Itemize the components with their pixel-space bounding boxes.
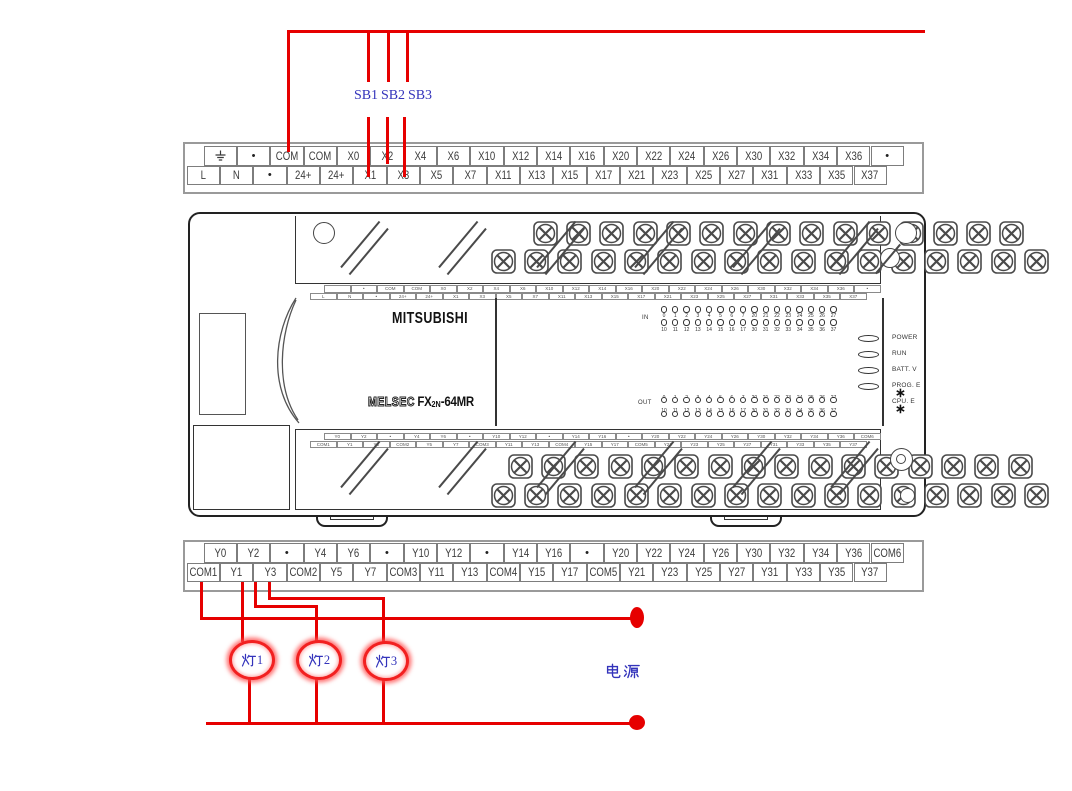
left-slot xyxy=(199,313,247,415)
screw-terminal xyxy=(491,483,516,508)
io-led xyxy=(751,397,757,403)
io-led xyxy=(763,306,769,312)
plc-terminal-label: • xyxy=(854,285,881,293)
plc-terminal-label: Y30 xyxy=(748,433,775,441)
plc-unit: •COMCOMX0X2X4X6X10X12X14X16X20X22X24X26X… xyxy=(188,212,926,517)
screw-terminal xyxy=(799,221,824,246)
terminal-Y14: Y14 xyxy=(504,543,537,563)
io-led xyxy=(706,306,712,312)
wire-segment xyxy=(254,605,318,608)
plc-terminal-label: • xyxy=(351,285,378,293)
wire-segment xyxy=(248,673,251,725)
status-led xyxy=(858,383,879,390)
io-led xyxy=(661,306,667,312)
plc-terminal-label: X31 xyxy=(761,293,788,301)
status-led xyxy=(858,367,879,374)
plc-terminal-label: 24+ xyxy=(416,293,443,301)
out-led-group-label: OUT xyxy=(638,400,652,406)
terminal-X5: X5 xyxy=(420,166,453,186)
wire-segment xyxy=(268,597,384,600)
plc-terminal-label: Y13 xyxy=(522,441,549,449)
terminal-Y27: Y27 xyxy=(720,563,753,583)
io-led xyxy=(695,397,701,403)
plc-terminal-label: COM xyxy=(404,285,431,293)
io-led xyxy=(830,306,836,312)
io-led xyxy=(695,411,701,417)
io-led-number: 26 xyxy=(817,313,828,319)
screw-terminal xyxy=(533,221,558,246)
io-led xyxy=(672,411,678,417)
plc-terminal-label: X7 xyxy=(522,293,549,301)
lamp-symbol: 3 xyxy=(363,641,409,681)
terminal-Y4: Y4 xyxy=(304,543,337,563)
cjk-glyph xyxy=(308,653,323,668)
io-led xyxy=(717,319,723,325)
io-led xyxy=(796,306,802,312)
io-led xyxy=(729,397,735,403)
terminal-X34: X34 xyxy=(804,146,837,166)
io-led xyxy=(830,411,836,417)
io-led xyxy=(661,411,667,417)
io-led xyxy=(717,306,723,312)
melsec-logo: MELSEC xyxy=(368,395,415,409)
plc-terminal-label xyxy=(324,285,351,293)
terminal-COM6: COM6 xyxy=(871,543,904,563)
terminal-Y0: Y0 xyxy=(204,543,237,563)
io-led-number: 23 xyxy=(783,313,794,319)
star-icon: ∗ xyxy=(895,389,906,397)
io-led-number: 1 xyxy=(670,313,681,319)
io-led xyxy=(706,319,712,325)
plc-terminal-label: COM5 xyxy=(628,441,655,449)
wire-segment xyxy=(287,30,290,152)
screw-terminal xyxy=(1024,483,1049,508)
wire-segment xyxy=(206,722,636,726)
screw-terminal xyxy=(674,454,699,479)
screw-terminal xyxy=(791,483,816,508)
screw-terminal xyxy=(774,454,799,479)
io-led-number: 0 xyxy=(659,313,670,319)
terminal-Y1: Y1 xyxy=(220,563,253,583)
io-led xyxy=(785,411,791,417)
faceplate-divider-left xyxy=(495,298,497,426)
screw-terminal xyxy=(508,454,533,479)
io-led-number: 27 xyxy=(828,313,839,319)
terminal-X25: X25 xyxy=(687,166,720,186)
io-led-number: 15 xyxy=(715,327,726,333)
spare-terminal: • xyxy=(470,543,503,563)
plc-terminal-label: X23 xyxy=(681,293,708,301)
terminal-Y26: Y26 xyxy=(704,543,737,563)
plc-terminal-label: X10 xyxy=(536,285,563,293)
io-led xyxy=(785,306,791,312)
terminal-Y23: Y23 xyxy=(653,563,686,583)
plc-terminal-label: X37 xyxy=(840,293,867,301)
plc-terminal-label: Y5 xyxy=(416,441,443,449)
io-led-number: 11 xyxy=(670,327,681,333)
plc-terminal-label: Y22 xyxy=(669,433,696,441)
cjk-digit: 2 xyxy=(324,653,330,668)
io-led-number: 4 xyxy=(704,313,715,319)
screw-terminal xyxy=(491,249,516,274)
io-led xyxy=(706,397,712,403)
terminal-N: N xyxy=(220,166,253,186)
io-led xyxy=(763,319,769,325)
power-terminal-dot xyxy=(629,715,645,730)
plc-terminal-label: Y32 xyxy=(775,433,802,441)
face-curve xyxy=(262,292,304,428)
io-led xyxy=(683,306,689,312)
wire-segment xyxy=(367,117,370,177)
plc-terminal-label: X24 xyxy=(695,285,722,293)
terminal-X4: X4 xyxy=(404,146,437,166)
plc-terminal-label: X34 xyxy=(801,285,828,293)
terminal-X24: X24 xyxy=(670,146,703,166)
screw-terminal xyxy=(608,454,633,479)
in-led-group-label: IN xyxy=(642,315,649,321)
io-led xyxy=(763,397,769,403)
plc-terminal-label: X17 xyxy=(628,293,655,301)
model-subscript: 2N xyxy=(432,399,441,409)
screw-terminal xyxy=(924,249,949,274)
io-led-number: 7 xyxy=(738,313,749,319)
plc-terminal-label: X35 xyxy=(814,293,841,301)
io-led xyxy=(796,319,802,325)
plc-terminal-label: X22 xyxy=(669,285,696,293)
screw-terminal xyxy=(808,454,833,479)
screw-terminal xyxy=(933,221,958,246)
io-led-number: 22 xyxy=(772,313,783,319)
power-terminal-dot xyxy=(630,607,644,628)
io-led-number: 24 xyxy=(794,313,805,319)
terminal-Y33: Y33 xyxy=(787,563,820,583)
io-led xyxy=(661,397,667,403)
wire-segment xyxy=(315,673,318,725)
plc-terminal-label: Y36 xyxy=(828,433,855,441)
io-led xyxy=(751,319,757,325)
io-led xyxy=(729,319,735,325)
cjk-glyph xyxy=(375,654,390,669)
terminal-X23: X23 xyxy=(653,166,686,186)
io-led xyxy=(672,397,678,403)
terminal-Y15: Y15 xyxy=(520,563,553,583)
io-led xyxy=(830,397,836,403)
screw-terminal xyxy=(757,483,782,508)
io-led-number: 35 xyxy=(805,327,816,333)
screw-terminal xyxy=(591,249,616,274)
plc-terminal-label: 24+ xyxy=(390,293,417,301)
bottom-left-panel xyxy=(193,425,290,510)
wire-segment xyxy=(315,605,318,643)
status-led-label: RUN xyxy=(892,350,907,357)
wire-segment xyxy=(254,582,257,607)
model-suffix: -64MR xyxy=(441,394,474,409)
plc-terminal-label: X4 xyxy=(483,285,510,293)
status-led xyxy=(858,351,879,358)
terminal-24: 24+ xyxy=(287,166,320,186)
terminal-X12: X12 xyxy=(504,146,537,166)
plc-terminal-label: Y1 xyxy=(337,441,364,449)
plc-wiring-diagram: •COMCOMX0X2X4X6X10X12X14X16X20X22X24X26X… xyxy=(0,0,1072,791)
io-led-number: 25 xyxy=(805,313,816,319)
terminal-COM2: COM2 xyxy=(287,563,320,583)
plc-terminal-label: • xyxy=(536,433,563,441)
io-led xyxy=(785,397,791,403)
terminal-X14: X14 xyxy=(537,146,570,166)
terminal-Y31: Y31 xyxy=(753,563,786,583)
plc-terminal-label: X21 xyxy=(655,293,682,301)
plc-terminal-label: Y0 xyxy=(324,433,351,441)
screw-terminal xyxy=(691,483,716,508)
terminal-COM4: COM4 xyxy=(487,563,520,583)
terminal-X13: X13 xyxy=(520,166,553,186)
screw-terminal xyxy=(924,483,949,508)
terminal-Y11: Y11 xyxy=(420,563,453,583)
terminal-Y35: Y35 xyxy=(820,563,853,583)
terminal-Y22: Y22 xyxy=(637,543,670,563)
terminal-X16: X16 xyxy=(570,146,603,166)
terminal-X31: X31 xyxy=(753,166,786,186)
io-led-number: 2 xyxy=(681,313,692,319)
io-led-number: 34 xyxy=(794,327,805,333)
plc-terminal-label: COM1 xyxy=(310,441,337,449)
io-led xyxy=(740,397,746,403)
terminal-COM1: COM1 xyxy=(187,563,220,583)
screw-terminal xyxy=(708,454,733,479)
terminal-X6: X6 xyxy=(437,146,470,166)
screw-terminal xyxy=(966,221,991,246)
io-led xyxy=(819,397,825,403)
push-button-label: SB3 xyxy=(406,88,434,104)
io-led xyxy=(774,306,780,312)
terminal-X21: X21 xyxy=(620,166,653,186)
io-led-number: 17 xyxy=(738,327,749,333)
screw-terminal xyxy=(974,454,999,479)
screw-terminal xyxy=(957,249,982,274)
terminal-Y37: Y37 xyxy=(854,563,887,583)
io-led xyxy=(830,319,836,325)
terminal-X36: X36 xyxy=(837,146,870,166)
plc-terminal-label: Y2 xyxy=(351,433,378,441)
screw-terminal xyxy=(991,483,1016,508)
cjk-glyph xyxy=(604,663,621,680)
terminal-X27: X27 xyxy=(720,166,753,186)
plc-terminal-label: X32 xyxy=(775,285,802,293)
plc-terminal-label: X26 xyxy=(722,285,749,293)
plc-terminal-label: X30 xyxy=(748,285,775,293)
cjk-digit: 1 xyxy=(257,653,263,668)
io-led xyxy=(774,319,780,325)
io-led xyxy=(774,411,780,417)
plc-terminal-label: Y4 xyxy=(404,433,431,441)
screw-terminal xyxy=(599,221,624,246)
io-led xyxy=(740,306,746,312)
plc-terminal-label: Y25 xyxy=(708,441,735,449)
plc-terminal-label: • xyxy=(363,293,390,301)
wire-segment xyxy=(367,30,370,82)
plc-terminal-label: X25 xyxy=(708,293,735,301)
terminal-Y25: Y25 xyxy=(687,563,720,583)
terminal-Y12: Y12 xyxy=(437,543,470,563)
plc-terminal-label: Y27 xyxy=(734,441,761,449)
plc-terminal-label: Y23 xyxy=(681,441,708,449)
terminal-Y21: Y21 xyxy=(620,563,653,583)
plc-terminal-label: L xyxy=(310,293,337,301)
plc-terminal-label: X1 xyxy=(443,293,470,301)
push-button-label: SB2 xyxy=(379,88,407,104)
screw-terminal xyxy=(957,483,982,508)
screw-terminal xyxy=(557,483,582,508)
spare-terminal: • xyxy=(871,146,904,166)
io-led xyxy=(717,411,723,417)
terminal-COM: COM xyxy=(304,146,337,166)
spare-terminal: • xyxy=(370,543,403,563)
lamp-symbol: 1 xyxy=(229,640,275,680)
io-led xyxy=(819,411,825,417)
terminal-Y34: Y34 xyxy=(804,543,837,563)
wire-segment xyxy=(241,582,244,642)
screw-terminal xyxy=(591,483,616,508)
io-led xyxy=(683,411,689,417)
spare-terminal: • xyxy=(270,543,303,563)
plc-terminal-label: • xyxy=(377,433,404,441)
screw-terminal xyxy=(791,249,816,274)
io-led xyxy=(695,306,701,312)
io-led xyxy=(808,306,814,312)
faceplate-divider-right xyxy=(882,298,884,426)
io-led xyxy=(740,411,746,417)
terminal-Y20: Y20 xyxy=(604,543,637,563)
star-icon: ∗ xyxy=(895,405,906,413)
screw-terminal xyxy=(657,483,682,508)
io-led-number: 3 xyxy=(692,313,703,319)
io-led xyxy=(740,319,746,325)
spare-terminal: • xyxy=(253,166,286,186)
terminal-X26: X26 xyxy=(704,146,737,166)
plc-terminal-label: N xyxy=(337,293,364,301)
terminal-X15: X15 xyxy=(553,166,586,186)
terminal-X35: X35 xyxy=(820,166,853,186)
terminal-Y3: Y3 xyxy=(253,563,286,583)
terminal-X32: X32 xyxy=(770,146,803,166)
plc-terminal-label: X11 xyxy=(549,293,576,301)
mounting-hole-lower xyxy=(900,488,915,503)
status-led xyxy=(858,335,879,342)
io-led-number: 37 xyxy=(828,327,839,333)
status-led-label: BATT. V xyxy=(892,366,917,373)
plc-terminal-label: X27 xyxy=(734,293,761,301)
plc-terminal-label: Y34 xyxy=(801,433,828,441)
io-led xyxy=(672,319,678,325)
plc-terminal-label: X14 xyxy=(589,285,616,293)
cjk-glyph xyxy=(241,653,256,668)
io-led xyxy=(785,319,791,325)
plc-terminal-label: Y17 xyxy=(602,441,629,449)
plc-model-text: MELSEC FX 2N -64MR xyxy=(368,394,474,409)
plc-terminal-label: Y16 xyxy=(589,433,616,441)
plc-terminal-label: COM2 xyxy=(390,441,417,449)
plc-terminal-label: X3 xyxy=(469,293,496,301)
io-led xyxy=(796,411,802,417)
plc-terminal-label: X33 xyxy=(787,293,814,301)
terminal-X20: X20 xyxy=(604,146,637,166)
io-led xyxy=(717,397,723,403)
screw-terminal xyxy=(991,249,1016,274)
screw-terminal xyxy=(941,454,966,479)
io-led xyxy=(774,397,780,403)
plc-terminal-label: Y20 xyxy=(642,433,669,441)
terminal-COM3: COM3 xyxy=(387,563,420,583)
io-led xyxy=(729,306,735,312)
earth-terminal xyxy=(204,146,237,166)
plc-terminal-label: • xyxy=(616,433,643,441)
top-right-round-detail xyxy=(895,222,917,244)
terminal-X0: X0 xyxy=(337,146,370,166)
plc-terminal-label: Y24 xyxy=(695,433,722,441)
io-led xyxy=(729,411,735,417)
power-supply-label xyxy=(604,663,640,680)
plc-terminal-label: X20 xyxy=(642,285,669,293)
io-led-number: 6 xyxy=(726,313,737,319)
io-led-number: 36 xyxy=(817,327,828,333)
plc-terminal-label: • xyxy=(457,433,484,441)
io-led xyxy=(819,306,825,312)
io-led-number: 20 xyxy=(749,313,760,319)
io-led-number: 21 xyxy=(760,313,771,319)
mounting-hole-inner xyxy=(896,454,906,464)
top-left-round-terminal xyxy=(313,222,335,244)
io-led xyxy=(683,319,689,325)
screw-terminal xyxy=(999,221,1024,246)
plc-terminal-label: Y26 xyxy=(722,433,749,441)
spare-terminal: • xyxy=(570,543,603,563)
terminal-X30: X30 xyxy=(737,146,770,166)
push-button-label: SB1 xyxy=(352,88,380,104)
terminal-X17: X17 xyxy=(587,166,620,186)
terminal-Y30: Y30 xyxy=(737,543,770,563)
screw-terminal xyxy=(699,221,724,246)
io-led-number: 10 xyxy=(659,327,670,333)
io-led-number: 32 xyxy=(772,327,783,333)
terminal-Y24: Y24 xyxy=(670,543,703,563)
model-prefix: FX xyxy=(417,394,431,409)
screw-terminal xyxy=(691,249,716,274)
terminal-Y7: Y7 xyxy=(353,563,386,583)
io-led xyxy=(808,411,814,417)
plc-terminal-label: COM6 xyxy=(854,433,881,441)
wire-segment xyxy=(287,30,925,33)
plc-terminal-label: Y35 xyxy=(814,441,841,449)
wire-segment xyxy=(200,582,203,619)
plc-terminal-label: Y33 xyxy=(787,441,814,449)
terminal-Y2: Y2 xyxy=(237,543,270,563)
lamp-symbol: 2 xyxy=(296,640,342,680)
plc-terminal-label: Y7 xyxy=(443,441,470,449)
terminal-24: 24+ xyxy=(320,166,353,186)
io-led xyxy=(706,411,712,417)
io-led xyxy=(808,397,814,403)
terminal-Y32: Y32 xyxy=(770,543,803,563)
terminal-Y13: Y13 xyxy=(453,563,486,583)
wire-segment xyxy=(386,117,389,164)
terminal-L: L xyxy=(187,166,220,186)
cjk-glyph xyxy=(623,663,640,680)
terminal-X11: X11 xyxy=(487,166,520,186)
io-led xyxy=(672,306,678,312)
io-led-number: 12 xyxy=(681,327,692,333)
plc-terminal-label: Y11 xyxy=(496,441,523,449)
plc-terminal-label: COM xyxy=(377,285,404,293)
